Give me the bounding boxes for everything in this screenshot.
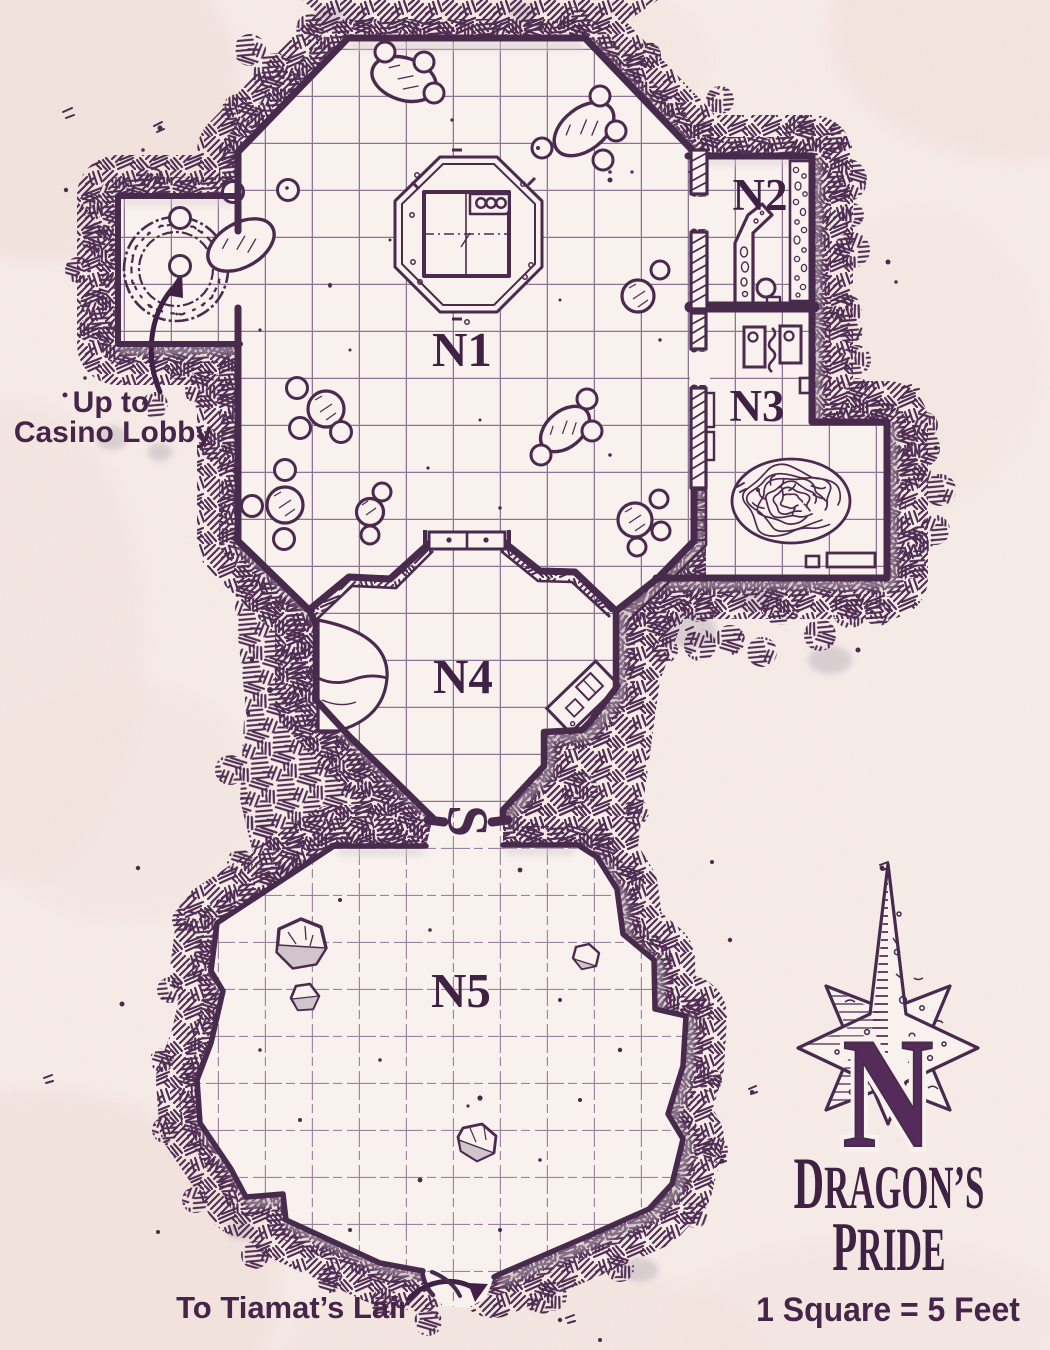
svg-text:S: S bbox=[436, 805, 501, 837]
svg-text:N3: N3 bbox=[730, 381, 785, 431]
svg-text:DRAGON’S: DRAGON’S bbox=[794, 1143, 985, 1225]
svg-text:PRIDE: PRIDE bbox=[832, 1209, 945, 1286]
svg-text:Up to: Up to bbox=[73, 386, 150, 419]
svg-text:N4: N4 bbox=[433, 649, 493, 704]
svg-text:N5: N5 bbox=[431, 963, 491, 1018]
svg-text:Casino Lobby: Casino Lobby bbox=[14, 416, 213, 449]
svg-text:N2: N2 bbox=[733, 170, 788, 220]
svg-text:1 Square = 5 Feet: 1 Square = 5 Feet bbox=[756, 1290, 1020, 1328]
svg-text:N1: N1 bbox=[432, 322, 492, 377]
svg-text:To Tiamat’s Lair: To Tiamat’s Lair bbox=[176, 1290, 410, 1325]
